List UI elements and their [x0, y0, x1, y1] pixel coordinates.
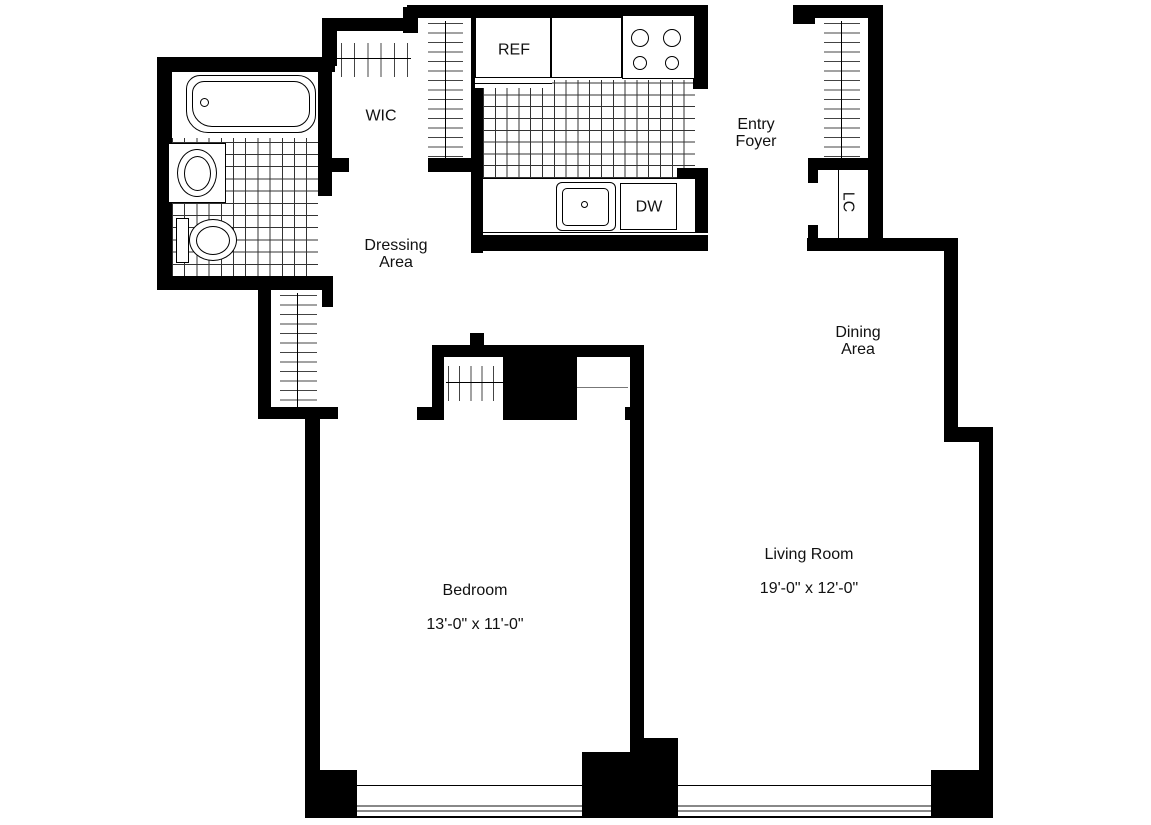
closet-rod-hatches — [341, 43, 408, 77]
counter-edge-line — [475, 83, 552, 84]
closet-rod-hatches — [824, 23, 860, 157]
wall-stub — [470, 333, 484, 345]
bathtub-drain — [200, 98, 209, 107]
top-wall — [322, 18, 407, 31]
entry-foyer-label: Entry Foyer — [736, 116, 777, 150]
closet-rod — [446, 382, 506, 383]
bedroom-left-wall — [305, 419, 320, 774]
closet-bottom-wall — [428, 158, 483, 172]
wall-stub — [322, 290, 333, 307]
door-niche — [577, 357, 628, 388]
column — [305, 770, 357, 818]
column-step — [630, 738, 678, 754]
closet-rod — [445, 21, 446, 159]
refrigerator-label: REF — [498, 42, 530, 59]
floor-plan: WIC Dressing Area Entry Foyer Dining Are… — [0, 0, 1151, 825]
dining-right-wall — [944, 238, 958, 430]
toilet-bowl-inner — [196, 226, 230, 255]
stove-burner — [665, 56, 679, 70]
wic-label: WIC — [365, 108, 396, 125]
toilet-tank — [176, 218, 189, 263]
dressing-closet-left-wall — [258, 290, 271, 419]
stove-burner — [633, 56, 647, 70]
kitchen-right-wall — [693, 5, 708, 89]
closet-rod-hatches — [280, 295, 317, 406]
dining-area-label: Dining Area — [835, 324, 880, 358]
closet-rod — [841, 21, 842, 159]
dressing-area-label: Dressing Area — [364, 237, 427, 271]
stove — [622, 15, 695, 79]
living-room-label: Living Room 19'-0" x 12'-0" — [760, 529, 858, 597]
bedroom-name: Bedroom — [443, 582, 508, 599]
bathroom-top-wall — [157, 57, 335, 72]
bedroom-living-wall — [630, 345, 644, 745]
bathroom-bottom-wall — [157, 276, 333, 290]
living-room-name: Living Room — [765, 546, 854, 563]
wall-stub — [332, 158, 349, 172]
counter-edge-line — [480, 232, 708, 233]
closet-right-wall — [868, 5, 883, 250]
column — [931, 770, 993, 818]
kitchen-bottom-wall — [480, 235, 708, 251]
shaft-block — [503, 345, 577, 420]
stove-burner — [663, 29, 681, 47]
wall-stub — [808, 158, 818, 183]
kitchen-sink-drain — [581, 201, 588, 208]
wall-stub — [793, 18, 815, 24]
bathtub-inner — [192, 81, 310, 127]
living-right-wall — [979, 427, 993, 772]
closet-rod — [297, 293, 298, 408]
kitchen-tile-floor — [483, 80, 695, 178]
stove-burner — [631, 29, 649, 47]
bathroom-sink-basin-inner — [184, 156, 211, 191]
dishwasher-label: DW — [636, 199, 663, 216]
bedroom-dimensions: 13'-0" x 11'-0" — [426, 616, 523, 633]
column — [582, 752, 678, 818]
living-room-dimensions: 19'-0" x 12'-0" — [760, 580, 858, 597]
dining-top-wall — [807, 238, 958, 251]
closet-rod-hatches — [448, 366, 504, 401]
bedroom-top-wall-segment — [417, 407, 444, 420]
kitchen-counter — [551, 17, 622, 78]
closet-rod — [335, 58, 411, 59]
bedroom-label: Bedroom 13'-0" x 11'-0" — [426, 565, 523, 633]
linen-closet-label: LC — [840, 192, 857, 212]
bathroom-right-wall — [318, 70, 332, 196]
